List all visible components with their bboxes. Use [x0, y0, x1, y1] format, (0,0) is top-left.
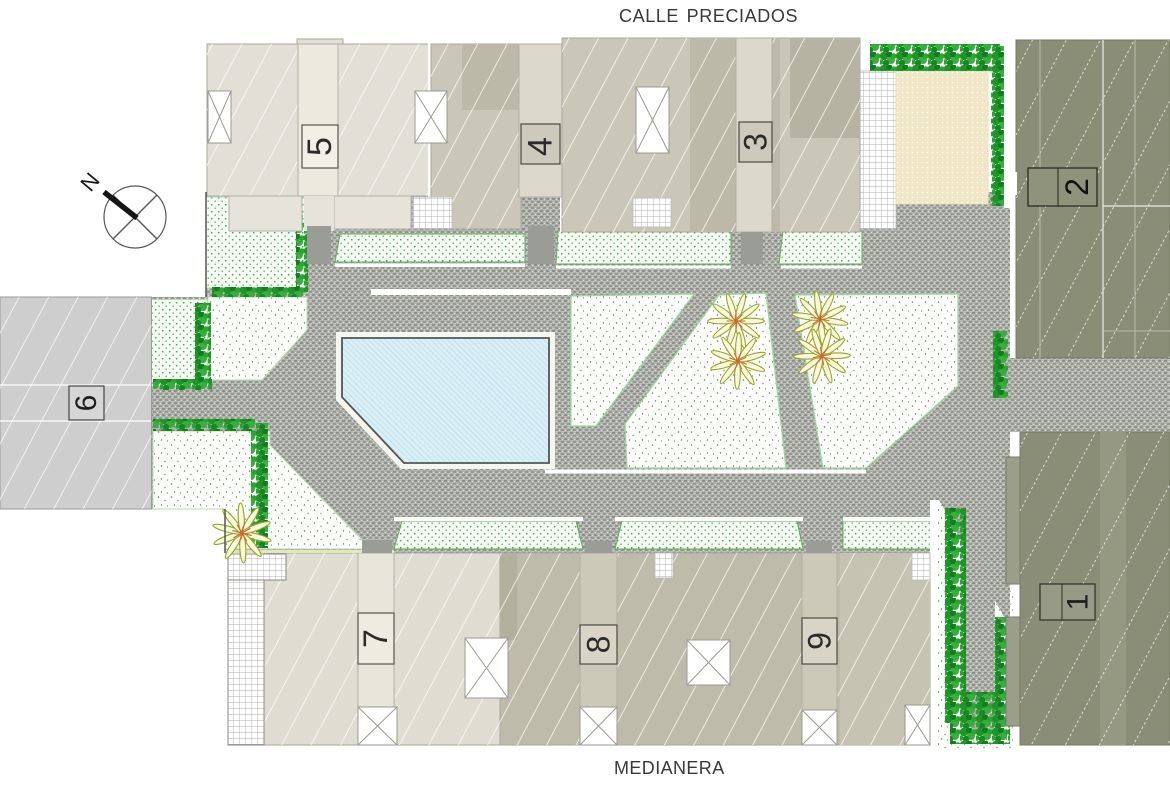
svg-text:6: 6	[70, 395, 103, 412]
svg-text:2: 2	[1059, 178, 1095, 196]
svg-text:3: 3	[738, 133, 774, 151]
svg-text:5: 5	[301, 137, 339, 156]
svg-text:MEDIANERA: MEDIANERA	[614, 758, 725, 778]
svg-text:8: 8	[581, 636, 617, 654]
svg-text:1: 1	[1062, 594, 1095, 611]
svg-text:7: 7	[357, 629, 395, 648]
svg-text:9: 9	[802, 632, 838, 650]
svg-text:4: 4	[522, 137, 560, 156]
svg-text:CALLE PRECIADOS: CALLE PRECIADOS	[619, 6, 798, 26]
